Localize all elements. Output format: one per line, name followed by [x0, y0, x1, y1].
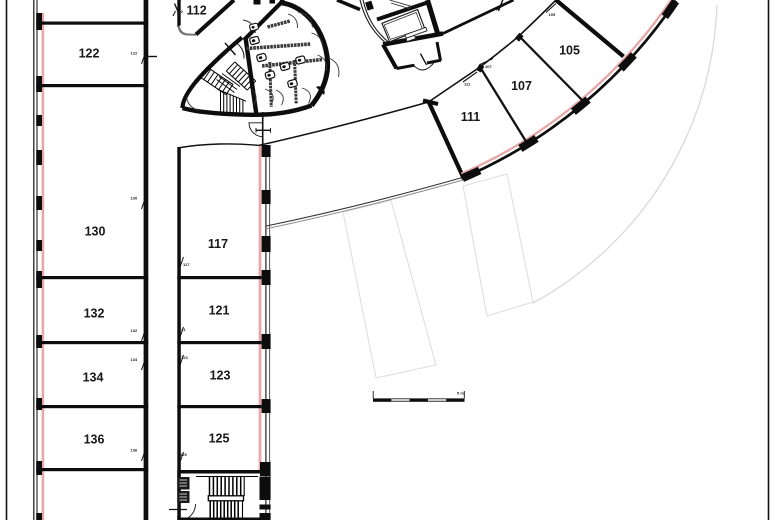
svg-text:136: 136 — [131, 448, 138, 453]
svg-text:134: 134 — [131, 357, 138, 362]
svg-text:122: 122 — [131, 51, 138, 56]
svg-text:130: 130 — [131, 196, 138, 201]
svg-text:136: 136 — [84, 433, 105, 447]
svg-text:107: 107 — [511, 79, 532, 93]
svg-text:134: 134 — [83, 371, 104, 385]
svg-text:105: 105 — [559, 44, 580, 58]
svg-text:111: 111 — [461, 110, 481, 124]
svg-text:5 m: 5 m — [457, 391, 464, 396]
svg-text:111: 111 — [464, 82, 471, 87]
svg-text:132: 132 — [84, 307, 105, 321]
svg-text:107: 107 — [485, 64, 492, 69]
svg-text:112: 112 — [187, 4, 207, 18]
svg-text:123: 123 — [210, 369, 231, 383]
svg-text:132: 132 — [131, 328, 138, 333]
svg-text:112: 112 — [177, 9, 184, 14]
svg-text:122: 122 — [79, 47, 100, 61]
svg-text:117: 117 — [183, 262, 190, 267]
svg-text:130: 130 — [85, 225, 106, 239]
svg-text:117: 117 — [208, 237, 228, 251]
svg-text:121: 121 — [209, 304, 230, 318]
svg-text:125: 125 — [209, 432, 230, 446]
svg-text:105: 105 — [549, 12, 556, 17]
